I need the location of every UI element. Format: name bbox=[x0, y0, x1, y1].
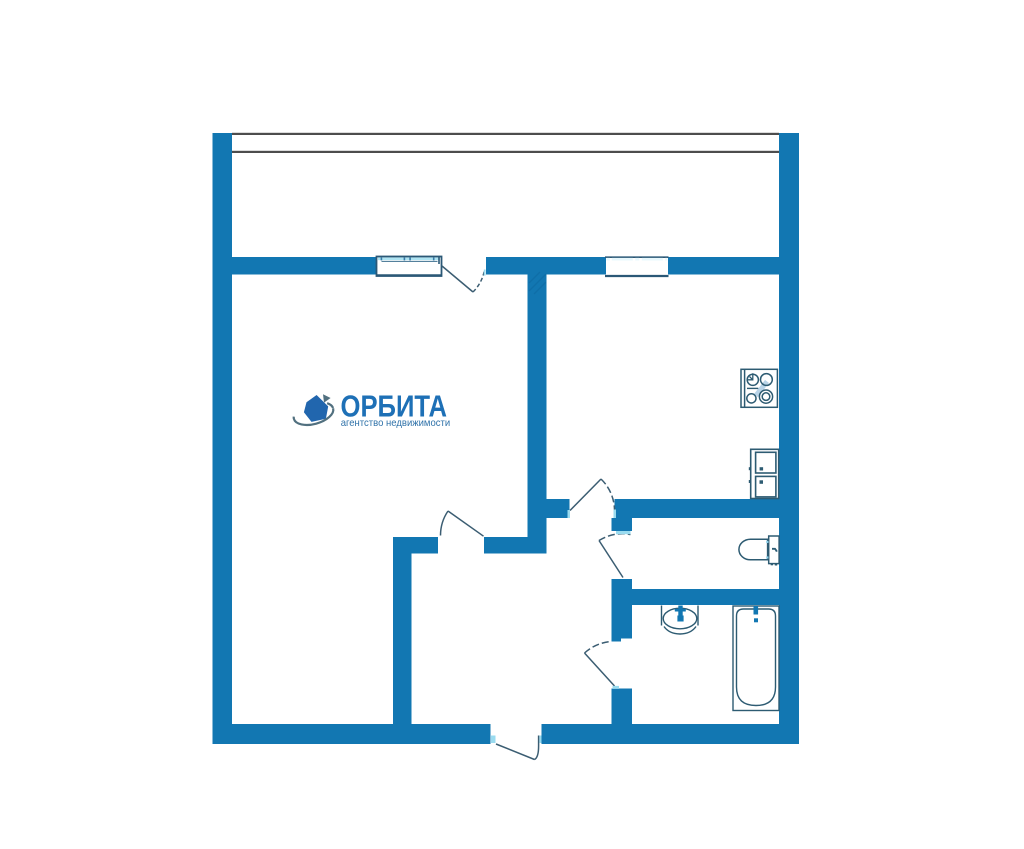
svg-text:агентство недвижимости: агентство недвижимости bbox=[341, 418, 451, 429]
